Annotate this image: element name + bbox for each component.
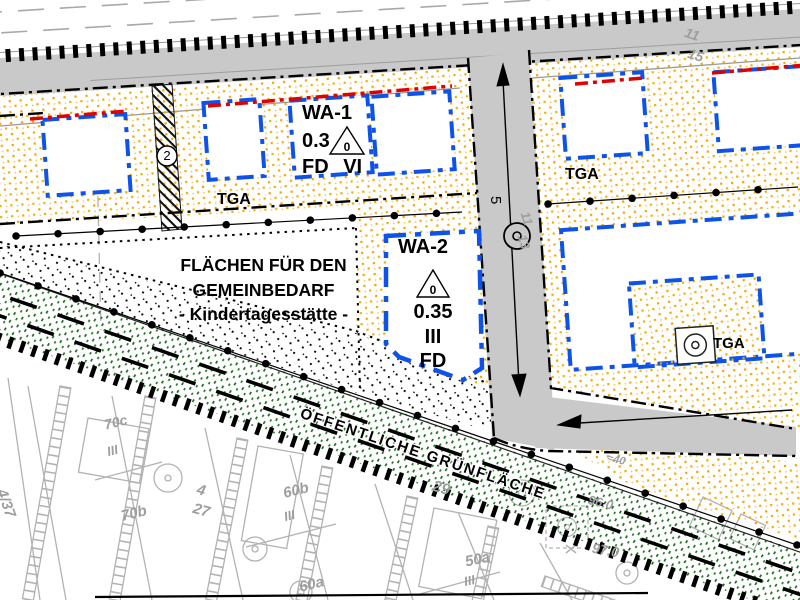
label-wa2-grz: 0.35 xyxy=(404,302,462,322)
label-wa2-name: WA-2 xyxy=(398,237,448,257)
label-path-number: 2 xyxy=(160,149,174,162)
gemeinbedarf-line1: FLÄCHEN FÜR DEN xyxy=(156,253,371,278)
label-wa2-floors: III xyxy=(404,327,462,347)
label-tga-left: TGA xyxy=(217,192,251,208)
zoning-plan-map: WA-1 0.3 0 FD VI WA-2 0 0.35 III FD FLÄC… xyxy=(0,0,800,600)
label-wa2-roof-pitch: 0 xyxy=(416,284,450,296)
parcel-50a-floors: III xyxy=(463,573,476,588)
elevation-97: 97.0 xyxy=(591,541,620,560)
label-tga-right: TGA xyxy=(565,167,599,183)
label-wa1-floors: FD VI xyxy=(302,157,362,177)
label-wa1-roof-pitch: 0 xyxy=(330,141,364,153)
label-wa1-name: WA-1 xyxy=(302,103,352,123)
label-wa1-grz: 0.3 xyxy=(302,131,330,151)
label-tga-block: TGA xyxy=(713,336,745,351)
label-wa2-roof: FD xyxy=(404,351,462,371)
gemeinbedarf-line2: GEMEINBEDARF xyxy=(156,278,371,303)
label-street-width: 5 xyxy=(488,196,503,204)
label-gemeinbedarf: FLÄCHEN FÜR DEN GEMEINBEDARF - Kindertag… xyxy=(156,253,371,327)
parcel-4-27-b: 27 xyxy=(191,501,211,520)
gemeinbedarf-line3: - Kindertagesstätte - xyxy=(156,302,371,327)
